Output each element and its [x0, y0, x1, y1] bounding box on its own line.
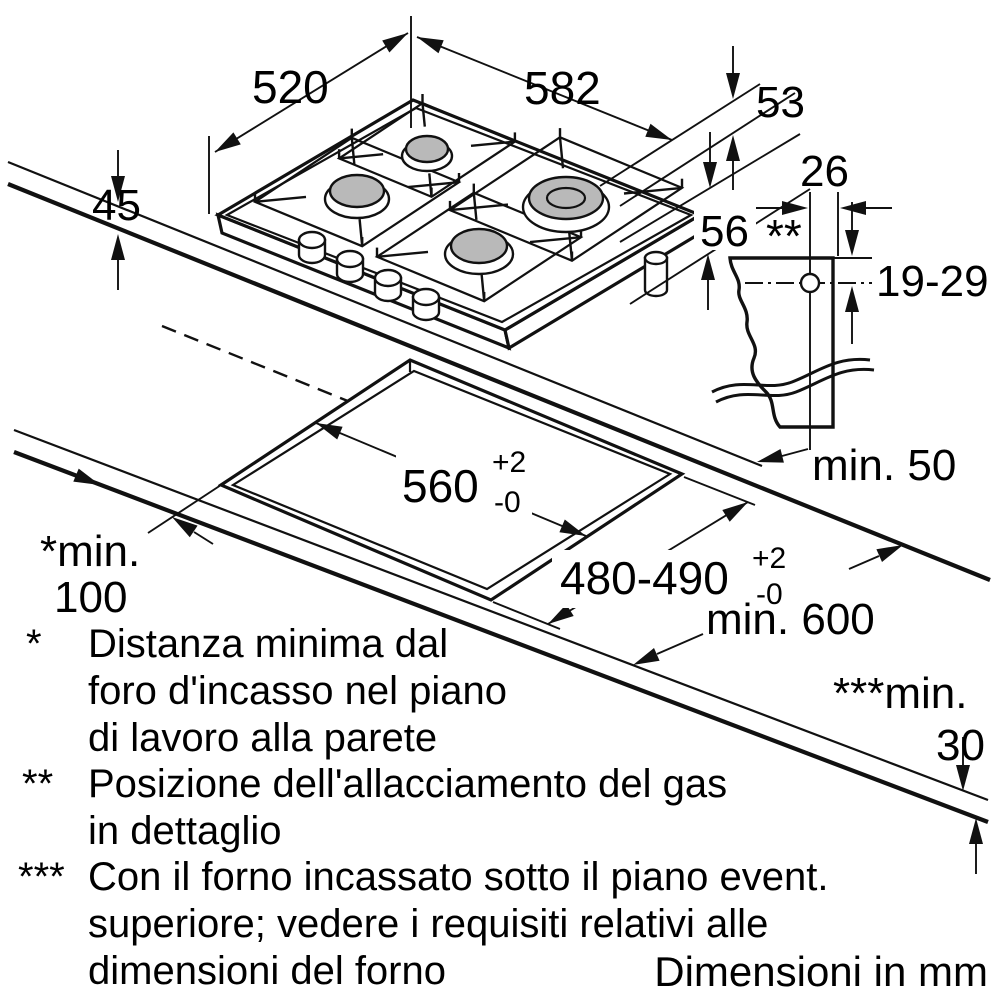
label-gas-marker: ** [766, 210, 802, 262]
label-560: 560 [402, 460, 479, 512]
label-min100-1: *min. [40, 527, 140, 576]
label-480-490: 480-490 [560, 552, 729, 604]
installation-diagram-page: 520 582 53 45 56 26 ** 19-29 min. 50 560… [0, 0, 1000, 1000]
label-520: 520 [252, 61, 329, 113]
hob-isometric-view [218, 94, 704, 348]
footnote-line: superiore; vedere i requisiti relativi a… [88, 902, 768, 946]
footnote-line: dimensioni del forno [88, 949, 446, 993]
label-560-minus: -0 [494, 486, 521, 519]
label-min30-2: 30 [936, 721, 985, 770]
burner-left [325, 175, 389, 218]
burner-back [402, 136, 452, 171]
label-56: 56 [700, 207, 749, 256]
label-45: 45 [92, 181, 141, 230]
footnote-line: Posizione dell'allacciamento del gas [88, 762, 727, 806]
footnote-line: di lavoro alla parete [88, 716, 437, 760]
hob-foot [645, 252, 667, 296]
label-min50: min. 50 [812, 441, 956, 490]
units-note: Dimensioni in mm [648, 948, 988, 996]
burner-front [445, 229, 513, 274]
label-min100-2: 100 [54, 573, 127, 622]
label-min600: min. 600 [706, 595, 875, 644]
footnote-line: Con il forno incassato sotto il piano ev… [88, 855, 828, 899]
footnote-line: foro d'incasso nel piano [88, 669, 507, 713]
footnote-line: Distanza minima dal [88, 622, 448, 666]
label-min30-1: ***min. [833, 669, 968, 718]
min50-dimension [757, 449, 808, 463]
label-53: 53 [756, 78, 805, 127]
footnote-mark-2: ** [22, 762, 53, 806]
burner-large-right [523, 177, 609, 232]
footnote-mark-3: *** [18, 855, 65, 899]
footnote-line: in dettaglio [88, 809, 281, 853]
label-19-29: 19-29 [876, 257, 989, 306]
label-560-plus: +2 [492, 446, 526, 479]
label-582: 582 [524, 62, 601, 114]
footnote-mark-1: * [26, 622, 42, 666]
label-26: 26 [800, 147, 849, 196]
label-480-plus: +2 [752, 542, 786, 575]
